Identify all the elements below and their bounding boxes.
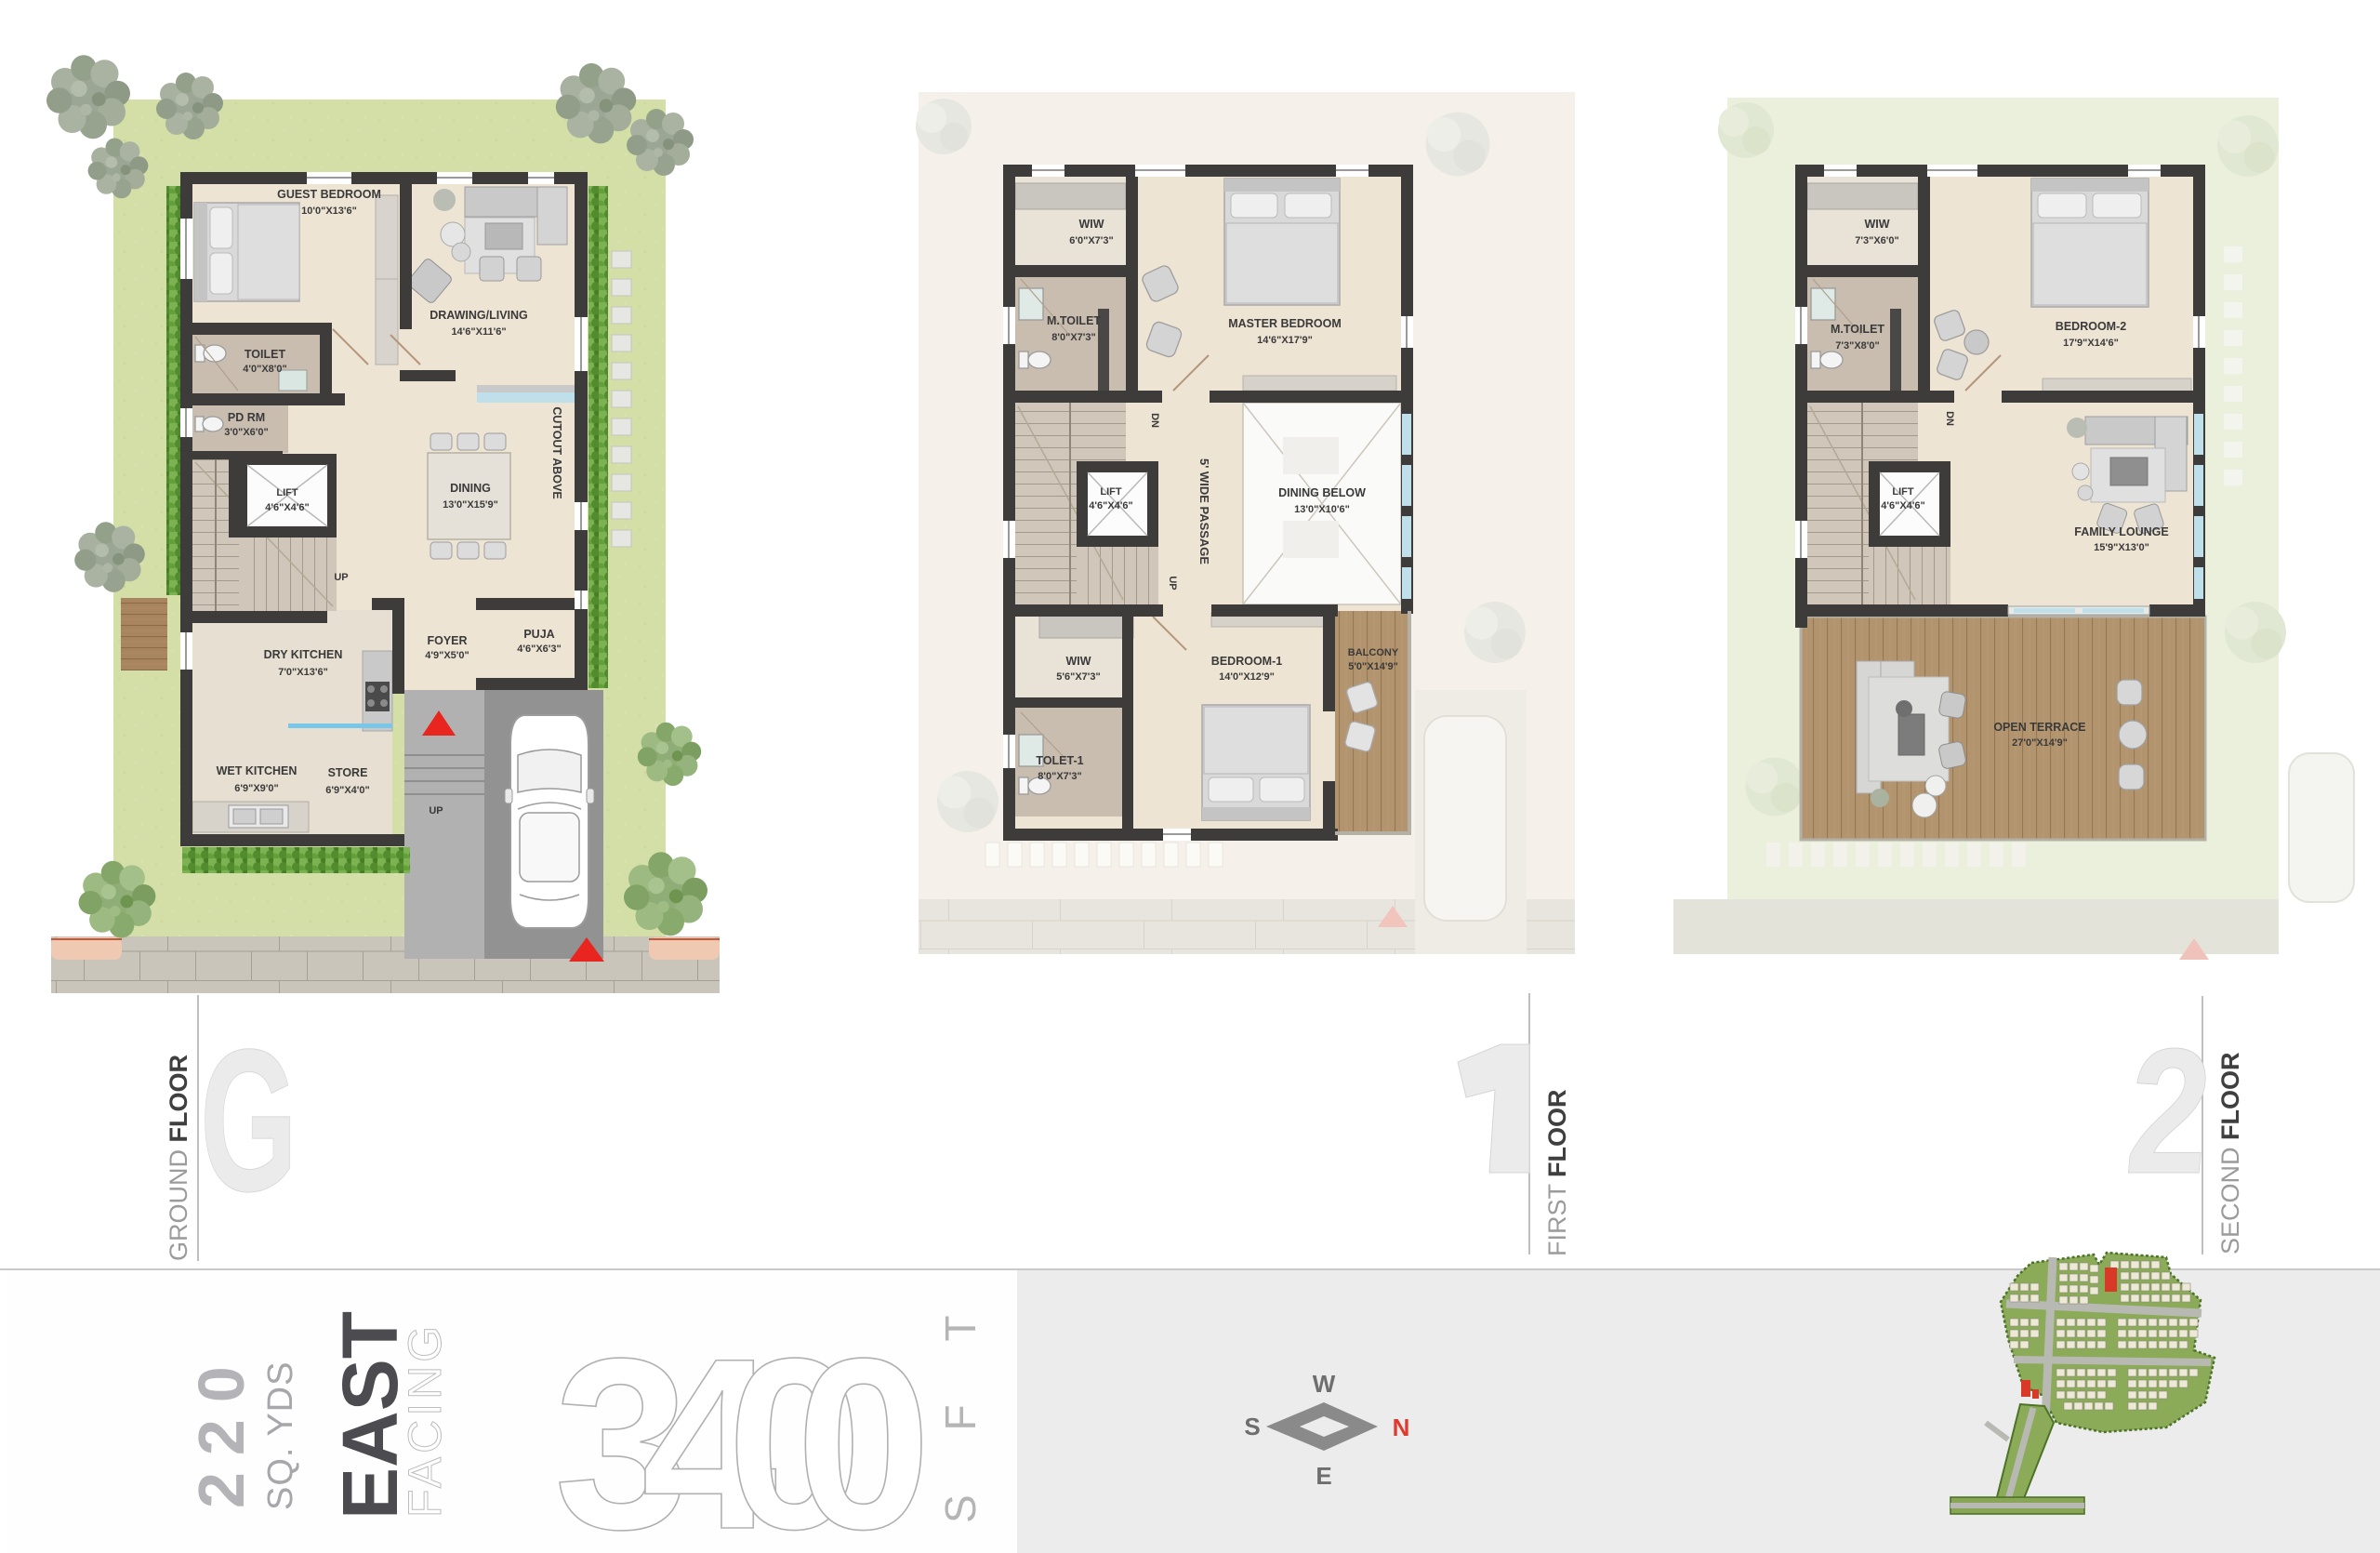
svg-text:3'0"X6'0": 3'0"X6'0": [224, 427, 268, 438]
svg-text:7'3"X8'0": 7'3"X8'0": [1835, 340, 1879, 352]
svg-text:4'6"X4'6": 4'6"X4'6": [265, 502, 309, 513]
svg-text:LIFT: LIFT: [276, 487, 297, 498]
svg-text:UP: UP: [334, 572, 348, 583]
svg-text:BEDROOM-2: BEDROOM-2: [2056, 320, 2126, 333]
svg-text:14'0"X12'9": 14'0"X12'9": [1219, 671, 1275, 683]
svg-text:CUTOUT ABOVE: CUTOUT ABOVE: [550, 406, 563, 498]
svg-text:TOILET: TOILET: [245, 348, 286, 361]
svg-text:4'6"X4'6": 4'6"X4'6": [1881, 500, 1924, 511]
svg-text:FACING: FACING: [399, 1322, 451, 1518]
svg-text:0: 0: [796, 1307, 932, 1553]
svg-text:FOYER: FOYER: [427, 634, 467, 647]
svg-text:G: G: [200, 1008, 297, 1234]
svg-text:UP: UP: [1167, 576, 1178, 590]
svg-text:2: 2: [2120, 1013, 2218, 1212]
svg-text:5' WIDE PASSAGE: 5' WIDE PASSAGE: [1197, 458, 1211, 564]
svg-text:LIFT: LIFT: [1100, 486, 1121, 498]
svg-text:15'9"X13'0": 15'9"X13'0": [2094, 542, 2149, 553]
svg-text:DINING BELOW: DINING BELOW: [1278, 486, 1366, 499]
svg-text:DRY KITCHEN: DRY KITCHEN: [264, 648, 343, 661]
svg-text:WIW: WIW: [1078, 218, 1104, 231]
svg-text:LIFT: LIFT: [1892, 486, 1913, 498]
svg-text:220: 220: [185, 1349, 258, 1508]
svg-text:N: N: [1393, 1414, 1410, 1441]
svg-text:FIRST FLOOR: FIRST FLOOR: [1543, 1089, 1571, 1256]
svg-text:WET KITCHEN: WET KITCHEN: [217, 764, 297, 777]
svg-text:W: W: [1313, 1370, 1336, 1398]
svg-text:5'0"X14'9": 5'0"X14'9": [1348, 661, 1398, 672]
svg-text:6'0"X7'3": 6'0"X7'3": [1069, 235, 1113, 246]
svg-text:WIW: WIW: [1864, 218, 1889, 231]
svg-text:PUJA: PUJA: [523, 628, 554, 641]
svg-text:17'9"X14'6": 17'9"X14'6": [2063, 338, 2119, 349]
svg-text:4'6"X6'3": 4'6"X6'3": [517, 644, 561, 655]
svg-text:6'9"X9'0": 6'9"X9'0": [234, 783, 278, 794]
svg-text:DINING: DINING: [450, 482, 491, 495]
svg-text:DN: DN: [1944, 411, 1955, 426]
svg-text:13'0"X15'9": 13'0"X15'9": [443, 499, 498, 511]
svg-text:DN: DN: [1149, 413, 1160, 428]
svg-text:SQ. YDS: SQ. YDS: [261, 1361, 300, 1510]
svg-text:8'0"X7'3": 8'0"X7'3": [1051, 332, 1095, 343]
svg-text:4'6"X4'6": 4'6"X4'6": [1089, 500, 1132, 511]
svg-text:UP: UP: [429, 805, 443, 816]
svg-text:7'0"X13'6": 7'0"X13'6": [278, 667, 328, 678]
svg-text:S: S: [1244, 1413, 1260, 1440]
svg-text:TOLET-1: TOLET-1: [1036, 754, 1083, 767]
svg-text:M.TOILET: M.TOILET: [1047, 314, 1101, 327]
svg-text:GROUND FLOOR: GROUND FLOOR: [165, 1055, 192, 1261]
svg-text:8'0"X7'3": 8'0"X7'3": [1038, 771, 1081, 782]
svg-text:FAMILY LOUNGE: FAMILY LOUNGE: [2074, 525, 2168, 538]
svg-text:6'9"X4'0": 6'9"X4'0": [325, 785, 369, 796]
svg-text:DRAWING/LIVING: DRAWING/LIVING: [430, 309, 528, 322]
svg-text:WIW: WIW: [1065, 655, 1091, 668]
svg-text:STORE: STORE: [328, 766, 368, 779]
svg-text:14'6"X17'9": 14'6"X17'9": [1257, 335, 1313, 346]
svg-text:MASTER BEDROOM: MASTER BEDROOM: [1228, 317, 1342, 330]
svg-text:GUEST BEDROOM: GUEST BEDROOM: [277, 188, 381, 201]
svg-text:M.TOILET: M.TOILET: [1831, 323, 1884, 336]
svg-text:13'0"X10'6": 13'0"X10'6": [1294, 504, 1350, 515]
svg-text:PD RM: PD RM: [228, 411, 265, 424]
svg-text:E: E: [1316, 1462, 1331, 1490]
svg-text:S F T: S F T: [936, 1289, 985, 1523]
svg-text:5'6"X7'3": 5'6"X7'3": [1056, 671, 1100, 683]
svg-text:4'9"X5'0": 4'9"X5'0": [425, 650, 469, 661]
svg-text:BEDROOM-1: BEDROOM-1: [1211, 655, 1282, 668]
svg-text:OPEN TERRACE: OPEN TERRACE: [1993, 721, 2085, 734]
svg-text:10'0"X13'6": 10'0"X13'6": [301, 206, 357, 217]
svg-text:7'3"X6'0": 7'3"X6'0": [1855, 235, 1898, 246]
svg-text:27'0"X14'9": 27'0"X14'9": [2012, 737, 2068, 749]
svg-text:BALCONY: BALCONY: [1348, 647, 1399, 658]
svg-text:SECOND FLOOR: SECOND FLOOR: [2216, 1052, 2244, 1254]
svg-text:4'0"X8'0": 4'0"X8'0": [243, 364, 286, 375]
svg-text:14'6"X11'6": 14'6"X11'6": [451, 326, 506, 338]
